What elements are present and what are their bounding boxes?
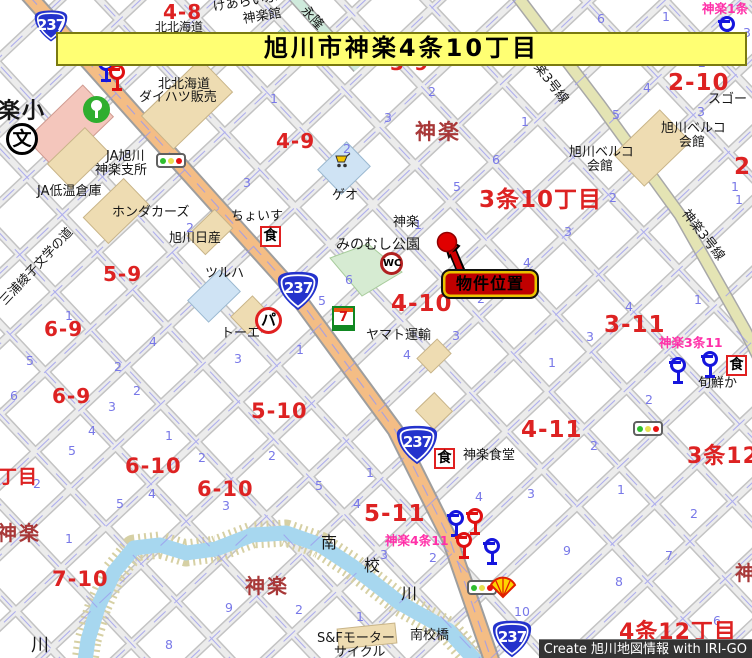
- map-base: [0, 0, 752, 658]
- map-credit: Create 旭川地図情報 with IRI-GO: [539, 639, 752, 658]
- title-banner: 旭川市神楽4条10丁目: [56, 32, 747, 66]
- map-canvas[interactable]: 1236132435162325213111452362365324414311…: [0, 0, 752, 658]
- property-location-callout: 物件位置: [441, 269, 539, 299]
